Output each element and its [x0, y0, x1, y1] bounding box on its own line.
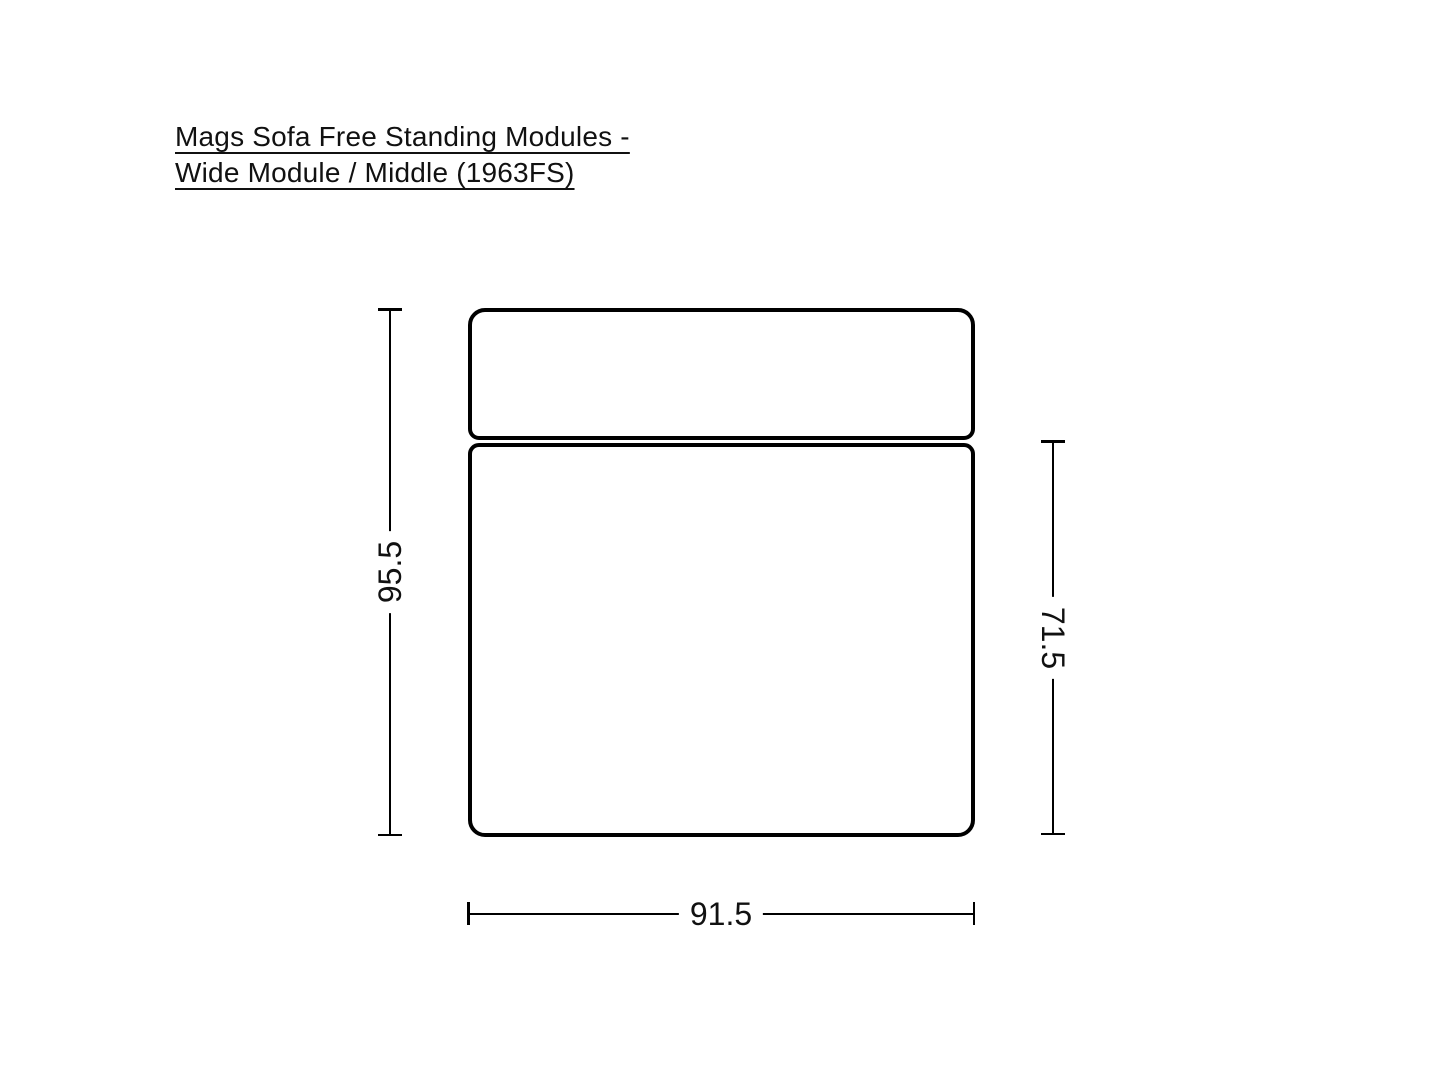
product-title-link[interactable]: Mags Sofa Free Standing Modules - Wide M…	[175, 119, 630, 191]
dimension-label-overall-depth: 95.5	[374, 531, 406, 613]
dimension-label-width: 91.5	[679, 898, 763, 930]
dimension-tick	[378, 308, 402, 311]
dimension-tick	[1041, 833, 1065, 836]
dimension-seat-depth: 71.5	[1041, 440, 1065, 835]
dimension-label-seat-depth: 71.5	[1037, 596, 1069, 678]
dimension-tick	[467, 902, 470, 925]
dimension-tick	[378, 834, 402, 837]
dimension-width: 91.5	[467, 902, 975, 925]
dimension-tick	[973, 902, 976, 925]
product-title-line1: Mags Sofa Free Standing Modules -	[175, 121, 630, 152]
diagram-canvas: Mags Sofa Free Standing Modules - Wide M…	[0, 0, 1445, 1087]
dimension-tick	[1041, 440, 1065, 443]
sofa-seat-cushion-outline	[468, 443, 975, 837]
product-title-line2: Wide Module / Middle (1963FS)	[175, 157, 575, 188]
dimension-overall-depth: 95.5	[378, 308, 402, 836]
sofa-backrest-outline	[468, 308, 975, 440]
